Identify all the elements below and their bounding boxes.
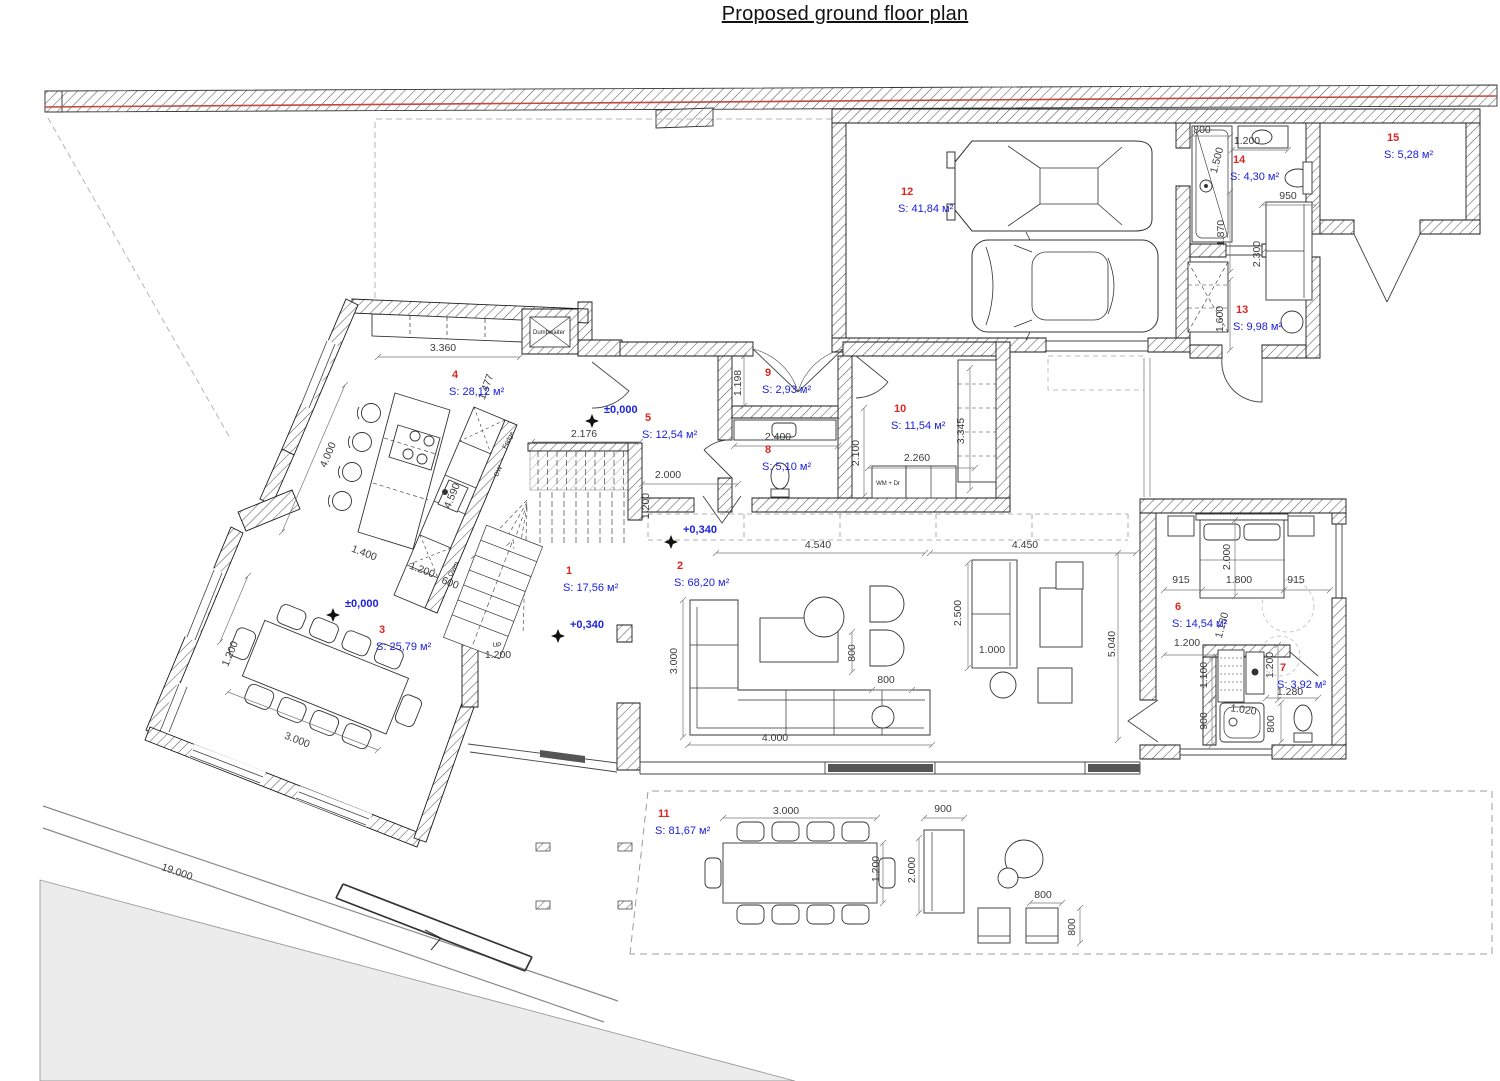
room-area-label: S: 5,28 м²	[1384, 149, 1433, 161]
dimension-label: 2.000	[1221, 544, 1233, 570]
dimension-label: 1.200	[640, 493, 652, 519]
dimension-label: 19.000	[160, 861, 194, 883]
dimension-label: 3.000	[283, 730, 312, 751]
driveway-fence	[1144, 358, 1150, 497]
room-area-label: S: 14,54 м²	[1172, 618, 1228, 630]
dimension-label: 1.000	[979, 644, 1005, 656]
driveway-apron	[1048, 356, 1144, 390]
room-number: 12	[901, 186, 913, 198]
dimension-label: 900	[1198, 712, 1210, 730]
dimension-label: 1.200	[870, 856, 882, 882]
dimension-label: 800	[1193, 124, 1211, 136]
dimension-label: 1.200	[485, 649, 511, 661]
floor-plan-drawing: 3.3601.4774.0004.5901.4001.2006001.2003.…	[0, 0, 1500, 1081]
terrace-wall-stubs	[536, 843, 632, 909]
room-area-label: S: 17,56 м²	[563, 582, 619, 594]
level-label: ±0,000	[604, 404, 638, 416]
dimension-label: 1.198	[732, 370, 744, 396]
level-marker-icon	[326, 608, 340, 622]
room-number: 13	[1236, 304, 1248, 316]
dimension-label: 2.400	[765, 431, 791, 443]
car	[972, 232, 1158, 340]
dimension-label: 1.200	[1234, 135, 1260, 147]
plant	[998, 868, 1018, 888]
toilet-tank	[771, 489, 789, 497]
outdoor-bench	[924, 830, 964, 913]
round-table	[990, 672, 1016, 698]
note-label: WM + Dr	[876, 481, 900, 487]
dimension-label: 1.800	[1226, 574, 1252, 586]
armchair	[870, 630, 904, 666]
room-number: 14	[1233, 154, 1246, 166]
dimension-label: 2.100	[850, 440, 862, 466]
room-number: 3	[379, 624, 385, 636]
room-area-label: S: 3,92 м²	[1277, 679, 1326, 691]
outdoor-table	[723, 843, 877, 903]
dimension-label: 915	[1172, 574, 1190, 586]
note-label: Dumbwaiter	[533, 330, 565, 336]
room-number: 2	[677, 560, 683, 572]
room-number: 8	[765, 444, 771, 456]
dimension-label: 4.000	[762, 732, 788, 744]
dimension-label: 4.450	[1012, 539, 1038, 551]
dimension-label: 3.000	[668, 648, 680, 674]
dimension-label: 4.540	[805, 539, 831, 551]
room-area-label: S: 5,10 м²	[762, 461, 811, 473]
stool	[1026, 908, 1058, 943]
upper-floor-outline	[375, 119, 836, 300]
armchair	[870, 586, 904, 622]
car	[947, 141, 1152, 231]
dimension-label: 800	[1265, 715, 1277, 733]
room-number: 5	[645, 412, 651, 424]
stool	[978, 908, 1010, 943]
room-number: 9	[765, 367, 771, 379]
dimension-label: 3.345	[955, 418, 967, 444]
wc-door	[704, 440, 732, 478]
dining-furniture	[213, 591, 437, 764]
nightstand	[1168, 516, 1194, 536]
level-label: +0,340	[683, 524, 717, 536]
bathroom-door	[1290, 652, 1318, 676]
kitchen-door	[592, 362, 629, 408]
room-number: 6	[1175, 601, 1181, 613]
room-number: 15	[1387, 132, 1399, 144]
storage-door	[1354, 234, 1420, 302]
dimension-label: 5.040	[1106, 631, 1118, 657]
toilet	[1294, 705, 1312, 731]
room-area-label: S: 25,79 м²	[376, 641, 432, 653]
room-area-label: S: 41,84 м²	[898, 203, 954, 215]
dimension-label: 950	[1279, 190, 1297, 202]
dimension-label: 2.260	[904, 452, 930, 464]
pillow	[1204, 524, 1240, 540]
room-number: 7	[1280, 662, 1286, 674]
dimension-label: 2.000	[655, 469, 681, 481]
dimension-label: 2.176	[571, 428, 597, 440]
side-table	[872, 706, 894, 728]
level-marker-icon	[664, 535, 678, 549]
room-area-label: S: 12,54 м²	[642, 429, 698, 441]
room-area-label: S: 11,54 м²	[891, 420, 946, 432]
dimension-label: 4.000	[318, 440, 339, 469]
room-area-label: S: 9,98 м²	[1233, 321, 1282, 333]
ottoman	[1038, 668, 1072, 703]
dimension-label: 800	[846, 644, 858, 662]
room-number: 10	[894, 403, 906, 415]
dimension-label: 800	[877, 674, 895, 686]
room-number: 11	[658, 808, 670, 820]
level-marker-icon	[585, 414, 599, 428]
room-area-label: S: 81,67 м²	[655, 825, 711, 837]
floor-plan-sheet: Proposed ground floor plan	[0, 0, 1500, 1081]
room-number: 4	[452, 369, 459, 381]
note-label: UP	[492, 642, 501, 649]
room-area-label: S: 2,93 м²	[762, 384, 811, 396]
dimension-label: 2.500	[952, 600, 964, 626]
dimension-label: 800	[1066, 918, 1078, 936]
room-area-label: S: 68,20 м²	[674, 577, 730, 589]
dimension-label: 1.400	[350, 543, 379, 564]
round-table	[1281, 311, 1303, 333]
toilet-tank	[1294, 733, 1312, 742]
room-area-label: S: 4,30 м²	[1230, 171, 1279, 183]
plant	[804, 597, 844, 637]
bedroom-corridor-door	[1128, 700, 1158, 742]
level-marker-icon	[551, 629, 565, 643]
dimension-label: 3.360	[430, 342, 456, 354]
dimension-label: 1.600	[1214, 306, 1226, 332]
dimension-label: 3.000	[773, 805, 799, 817]
headboard	[1196, 514, 1288, 520]
dimension-label: 2.000	[906, 857, 918, 883]
exterior-steps	[336, 884, 532, 971]
console-table	[1040, 588, 1082, 647]
dimension-label: 1.870	[1215, 220, 1227, 246]
pillow	[1244, 524, 1280, 540]
level-label: +0,340	[570, 619, 604, 631]
dimension-label: 900	[934, 803, 952, 815]
level-label: ±0,000	[345, 598, 379, 610]
dimension-label: 1.200	[1264, 652, 1276, 678]
toilet-tank	[1303, 162, 1312, 194]
dimension-label: 915	[1287, 574, 1305, 586]
mudroom-exterior-door	[1222, 358, 1262, 402]
dimension-label: 1.200	[1174, 637, 1200, 649]
pool-area	[40, 880, 795, 1081]
room-number: 1	[566, 565, 572, 577]
wardrobe-row	[648, 514, 1128, 540]
room-area-label: S: 28,12 м²	[449, 386, 505, 398]
dimension-label: 2.300	[1251, 241, 1263, 267]
living-furniture	[690, 560, 1083, 735]
dimension-label: 800	[1034, 889, 1052, 901]
nightstand	[1288, 516, 1314, 536]
side-table	[1056, 562, 1083, 589]
garage-cars	[947, 141, 1158, 340]
dimension-label: 1.100	[1198, 662, 1210, 688]
utility-door	[856, 356, 888, 398]
